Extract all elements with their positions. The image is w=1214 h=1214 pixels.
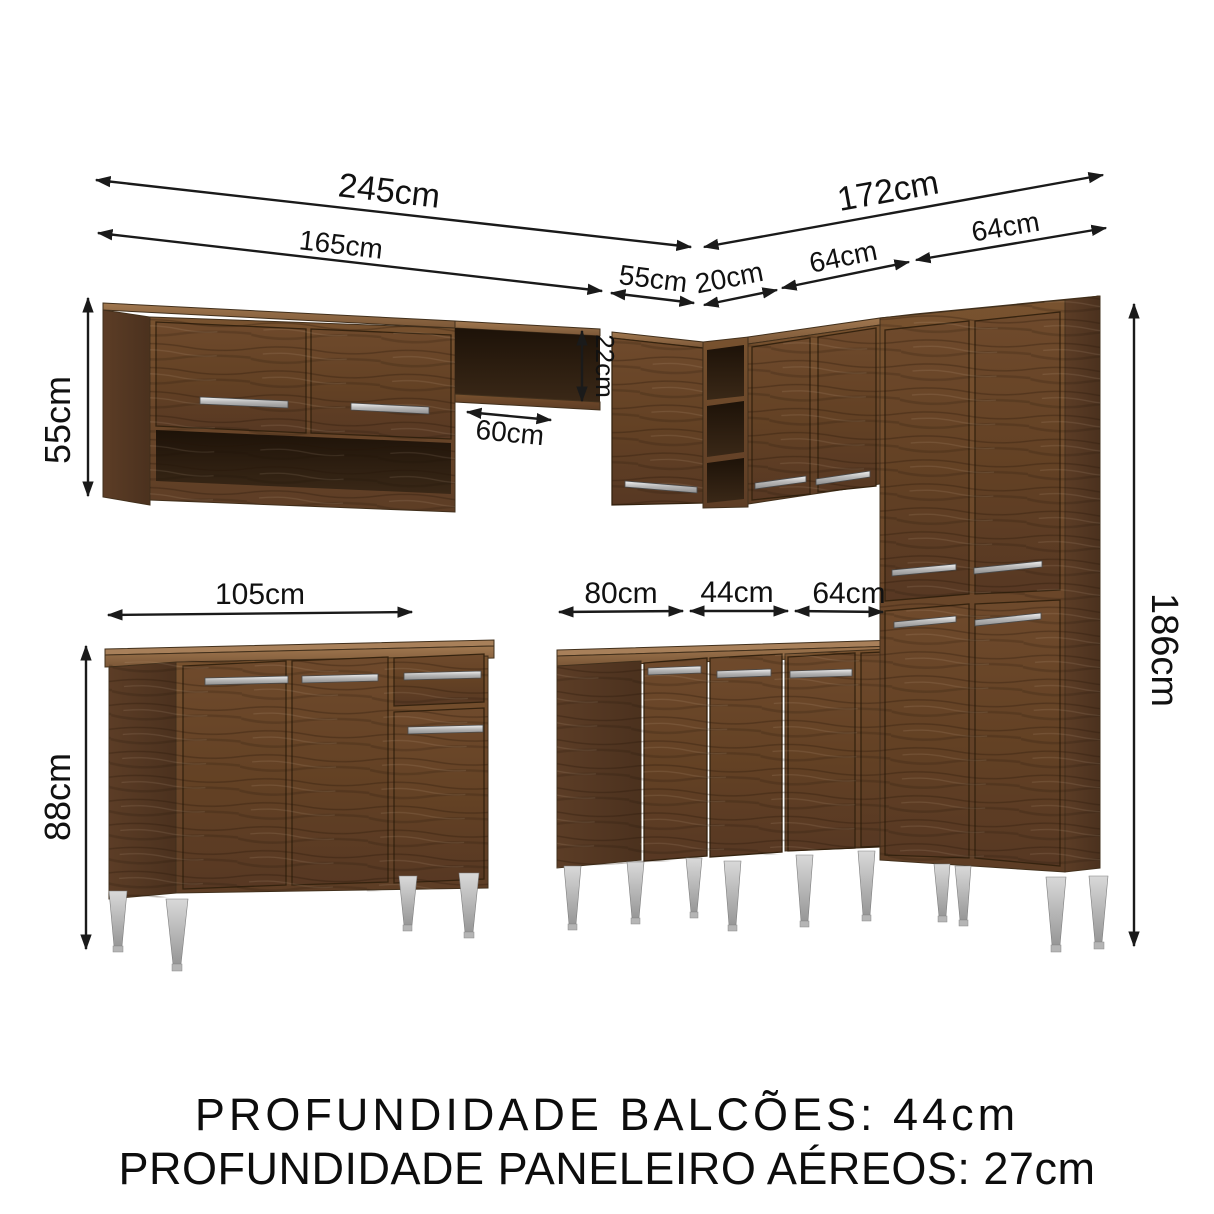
dim-tall-cabinet-width: 64cm — [916, 206, 1106, 260]
shelf-cubby — [707, 458, 744, 503]
dim-total-left: 245cm — [96, 166, 691, 247]
door-handle — [717, 669, 771, 678]
dim-label-55cm-vertical: 55cm — [37, 376, 78, 464]
product-dimension-diagram: 245cm 172cm 165cm 55cm 20cm 64cm 64cm — [0, 0, 1214, 1214]
cabinet-side-panel — [103, 310, 150, 505]
door-handle — [790, 669, 852, 678]
corner-open-shelf — [703, 337, 748, 508]
dim-label-172cm: 172cm — [834, 163, 941, 219]
footer: PROFUNDIDADE BALCÕES: 44cm PROFUNDIDADE … — [119, 1089, 1096, 1194]
dim-tall-height: 186cm — [1134, 304, 1185, 946]
base-corner-cabinet — [557, 639, 934, 931]
wood-grain-overlay — [150, 317, 455, 512]
dim-label-88cm-vertical: 88cm — [37, 753, 78, 841]
door-handle — [408, 725, 483, 734]
dim-label-80cm: 80cm — [584, 577, 657, 610]
shelf-cubby — [707, 345, 744, 400]
dim-corner-door-width: 55cm — [611, 259, 694, 303]
door-handle — [648, 666, 701, 675]
tall-cabinet — [880, 296, 1108, 952]
upper-left-cabinet — [103, 303, 455, 512]
dim-base-right-width: 64cm — [795, 577, 886, 612]
upper-corner-door — [612, 332, 703, 505]
footer-depth-paneleiro: PROFUNDIDADE PANELEIRO AÉREOS: 27cm — [119, 1143, 1096, 1194]
door-handle — [302, 674, 378, 683]
dim-niche-width: 60cm — [467, 412, 551, 451]
shelf-cubby — [707, 401, 744, 457]
kitchen-set-diagram: 245cm 172cm 165cm 55cm 20cm 64cm 64cm — [0, 0, 1214, 1214]
dim-upper-right-width: 64cm — [782, 235, 909, 288]
dim-label-186cm-vertical: 186cm — [1143, 593, 1185, 707]
drawer-handle — [404, 671, 481, 680]
niche-interior — [455, 328, 600, 402]
dim-label-64cm: 64cm — [812, 577, 885, 610]
dim-base-height: 88cm — [37, 646, 86, 949]
dim-label-64cm: 64cm — [806, 235, 879, 279]
dim-upper-height: 55cm — [37, 298, 88, 496]
wood-grain-overlay — [880, 296, 1100, 868]
cabinet-legs — [934, 864, 1108, 952]
dim-label-44cm: 44cm — [700, 576, 773, 609]
upper-niche-shelf — [455, 321, 600, 410]
dim-label-20cm: 20cm — [693, 256, 766, 299]
dim-label-105cm: 105cm — [215, 578, 305, 611]
dim-label-55cm: 55cm — [617, 259, 689, 298]
dim-label-165cm: 165cm — [298, 224, 385, 264]
upper-right-cabinet — [748, 318, 880, 504]
dim-base-corner-door-width: 44cm — [690, 576, 788, 611]
dim-corner-shelf-width: 20cm — [693, 256, 777, 305]
wood-grain-overlay — [557, 647, 930, 868]
footer-depth-balcoes: PROFUNDIDADE BALCÕES: 44cm — [195, 1089, 1019, 1140]
base-left-cabinet — [105, 640, 494, 971]
dim-base-left-width: 105cm — [108, 578, 412, 615]
dim-upper-left-width: 165cm — [98, 224, 602, 291]
dim-label-22cm: 22cm — [590, 334, 620, 398]
wood-grain-overlay — [612, 338, 703, 505]
dim-total-right: 172cm — [704, 163, 1103, 247]
door-handle — [205, 676, 288, 685]
wood-grain-overlay — [109, 656, 488, 899]
dim-base-corner-width: 80cm — [559, 577, 683, 612]
dim-label-60cm: 60cm — [474, 414, 545, 451]
